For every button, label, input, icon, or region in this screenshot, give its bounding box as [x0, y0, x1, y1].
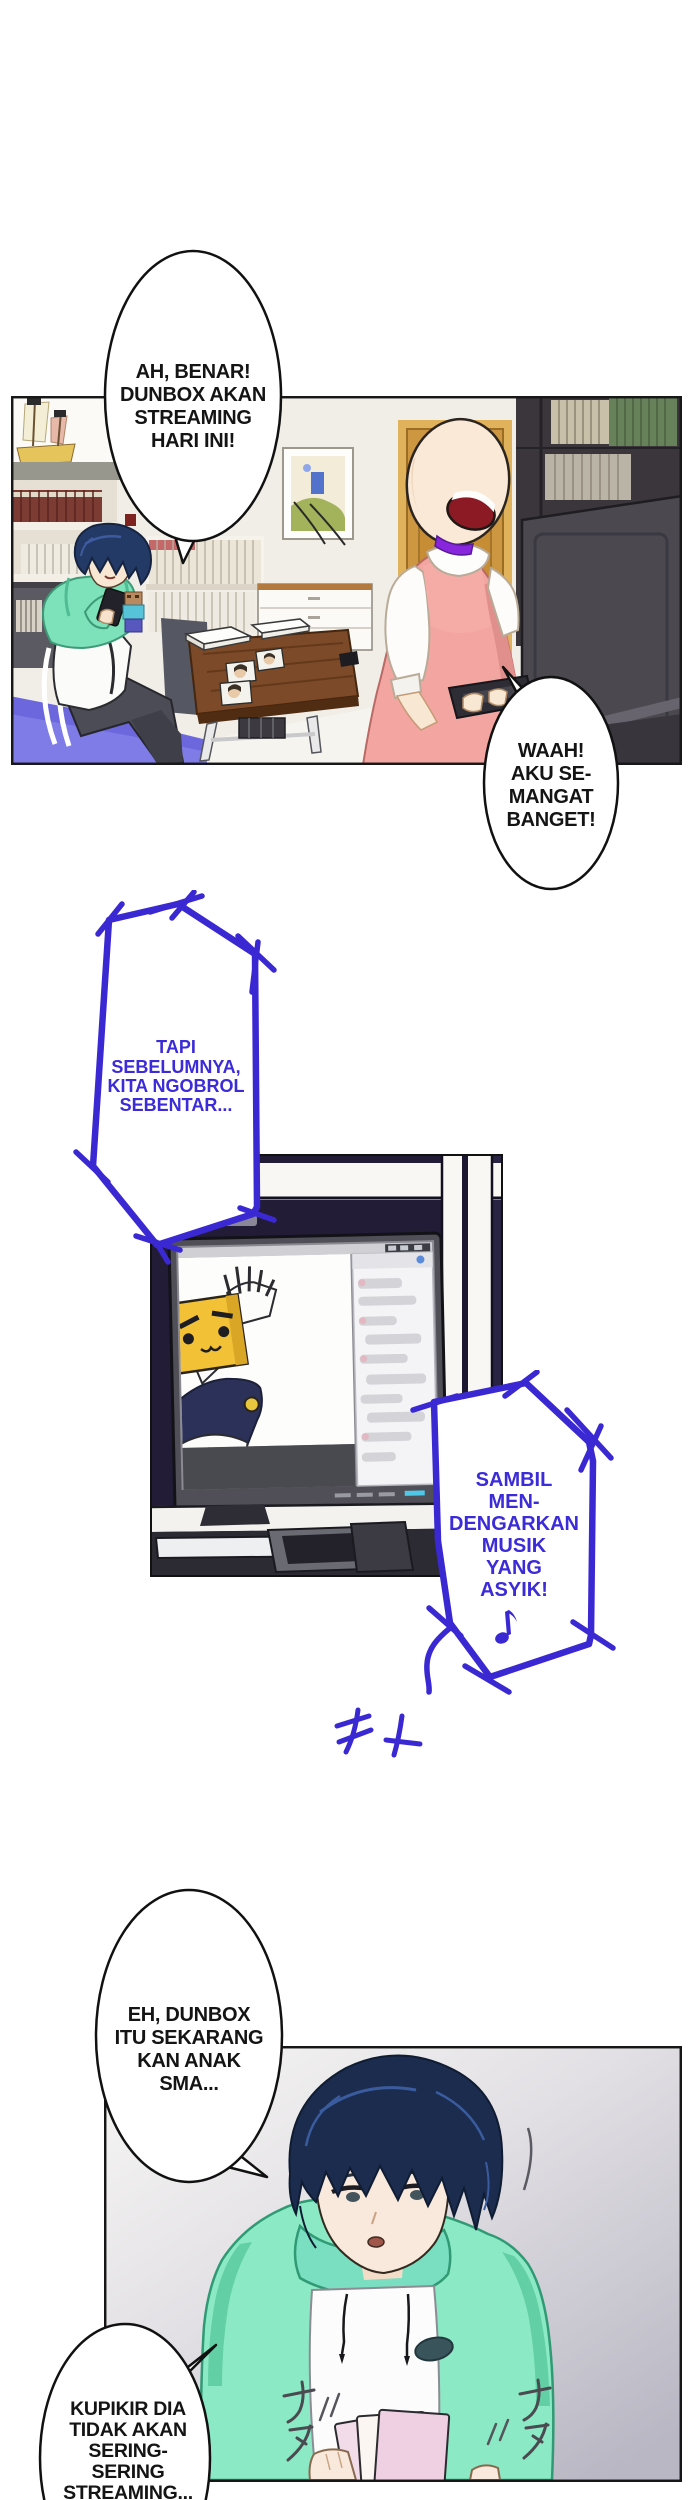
- svg-text:SAMBIL: SAMBIL: [476, 1469, 553, 1491]
- svg-text:KITA NGOBROL: KITA NGOBROL: [108, 1076, 245, 1096]
- svg-text:SMA...: SMA...: [159, 2073, 218, 2095]
- svg-text:SEBENTAR...: SEBENTAR...: [120, 1095, 233, 1115]
- svg-text:SERING: SERING: [92, 2461, 165, 2483]
- svg-text:TAPI: TAPI: [156, 1037, 196, 1057]
- svg-text:HARI INI!: HARI INI!: [151, 430, 235, 452]
- svg-text:YANG: YANG: [486, 1557, 542, 1579]
- svg-text:MANGAT: MANGAT: [509, 786, 594, 808]
- svg-text:BANGET!: BANGET!: [506, 809, 595, 831]
- svg-text:STREAMING...: STREAMING...: [63, 2482, 193, 2500]
- svg-text:KUPIKIR DIA: KUPIKIR DIA: [70, 2398, 186, 2420]
- svg-text:WAAH!: WAAH!: [518, 740, 584, 762]
- svg-text:MUSIK: MUSIK: [482, 1535, 547, 1557]
- svg-text:ITU SEKARANG: ITU SEKARANG: [115, 2027, 264, 2049]
- svg-text:AH, BENAR!: AH, BENAR!: [136, 361, 251, 383]
- svg-text:TIDAK AKAN: TIDAK AKAN: [69, 2419, 187, 2441]
- svg-text:DUNBOX AKAN: DUNBOX AKAN: [120, 384, 266, 406]
- svg-text:ASYIK!: ASYIK!: [480, 1579, 548, 1601]
- svg-text:MEN-: MEN-: [488, 1491, 539, 1513]
- svg-text:SERING-: SERING-: [88, 2440, 167, 2462]
- svg-text:SEBELUMNYA,: SEBELUMNYA,: [111, 1057, 240, 1077]
- svg-text:DENGARKAN: DENGARKAN: [449, 1513, 579, 1535]
- svg-text:STREAMING: STREAMING: [134, 407, 251, 429]
- svg-text:EH, DUNBOX: EH, DUNBOX: [128, 2004, 252, 2026]
- svg-text:AKU SE-: AKU SE-: [511, 763, 591, 785]
- svg-text:KAN ANAK: KAN ANAK: [137, 2050, 241, 2072]
